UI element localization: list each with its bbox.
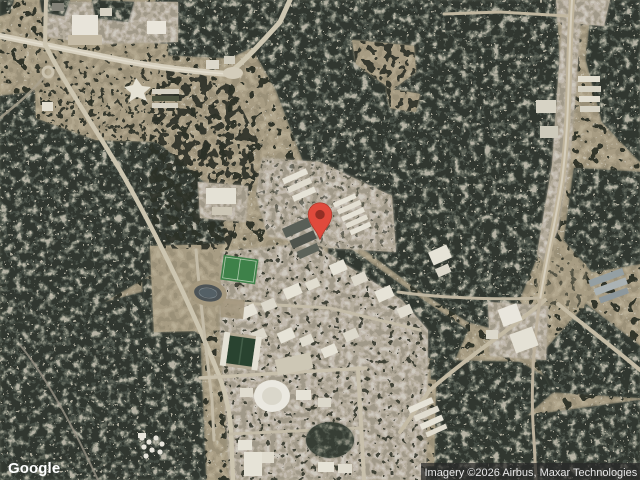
svg-text:Google: Google: [8, 460, 60, 477]
svg-text:Imagery ©2026 Airbus, Maxar Te: Imagery ©2026 Airbus, Maxar Technologies: [425, 467, 638, 479]
